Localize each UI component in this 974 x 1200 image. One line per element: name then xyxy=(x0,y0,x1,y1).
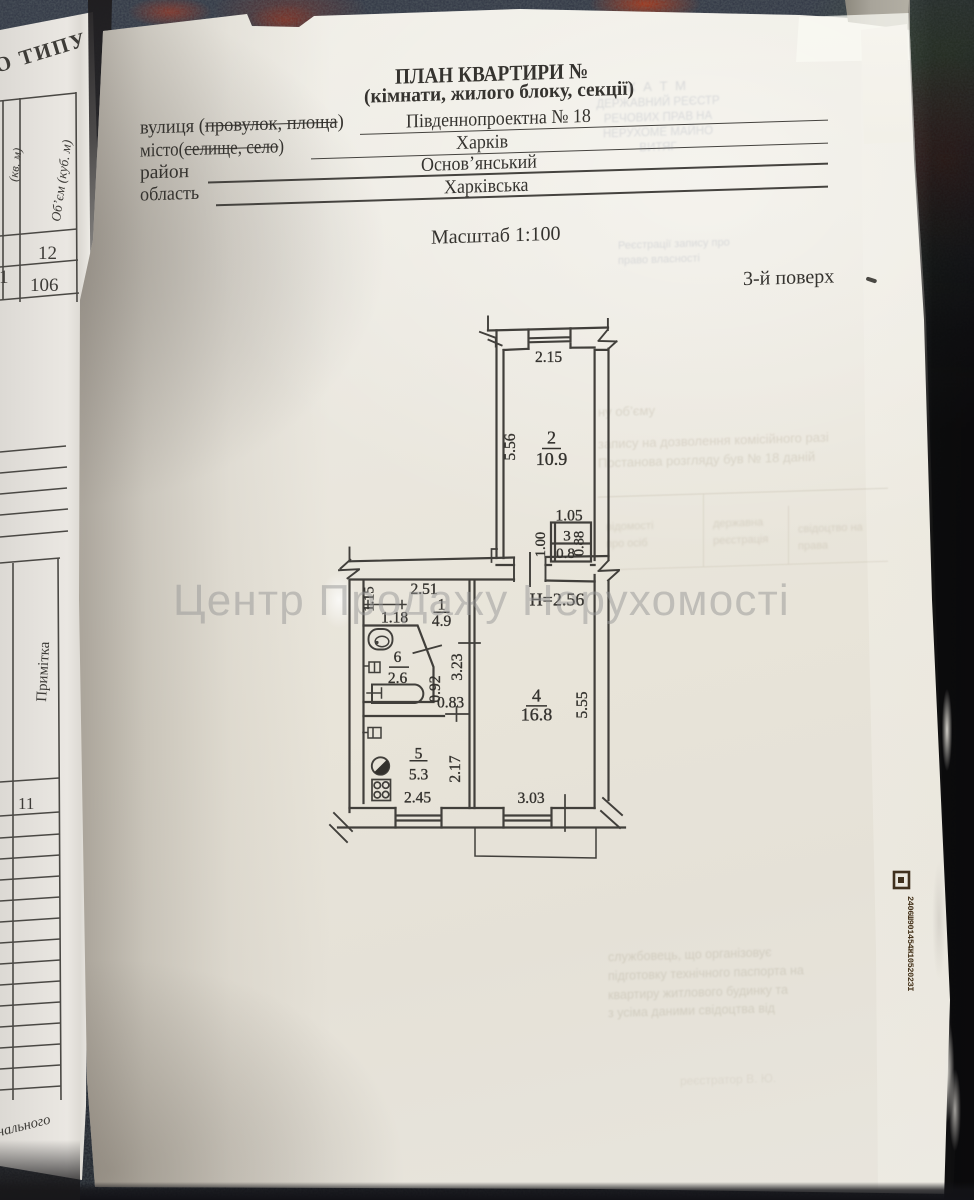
svg-text:2.6: 2.6 xyxy=(388,670,408,687)
svg-text:2406Ш901454Ж105202ЗІ: 2406Ш901454Ж105202ЗІ xyxy=(905,896,915,991)
svg-text:0.88: 0.88 xyxy=(572,531,588,556)
svg-text:2.15: 2.15 xyxy=(535,349,562,366)
svg-text:2: 2 xyxy=(547,428,556,448)
svg-text:6: 6 xyxy=(394,649,402,666)
svg-text:3: 3 xyxy=(563,529,571,545)
svg-text:4: 4 xyxy=(532,686,541,706)
svg-text:2.45: 2.45 xyxy=(404,790,431,807)
svg-text:3.03: 3.03 xyxy=(517,790,544,807)
svg-text:5: 5 xyxy=(415,746,423,763)
svg-text:10.9: 10.9 xyxy=(536,449,568,469)
svg-text:5.56: 5.56 xyxy=(502,433,519,460)
svg-text:0.83: 0.83 xyxy=(437,695,464,712)
svg-text:1.00: 1.00 xyxy=(533,532,549,557)
svg-text:16.8: 16.8 xyxy=(521,705,553,725)
svg-text:5.3: 5.3 xyxy=(409,767,429,784)
svg-text:2.17: 2.17 xyxy=(447,755,464,782)
svg-text:3.23: 3.23 xyxy=(449,653,466,680)
svg-text:1.05: 1.05 xyxy=(555,508,582,525)
svg-text:5.55: 5.55 xyxy=(574,691,591,718)
